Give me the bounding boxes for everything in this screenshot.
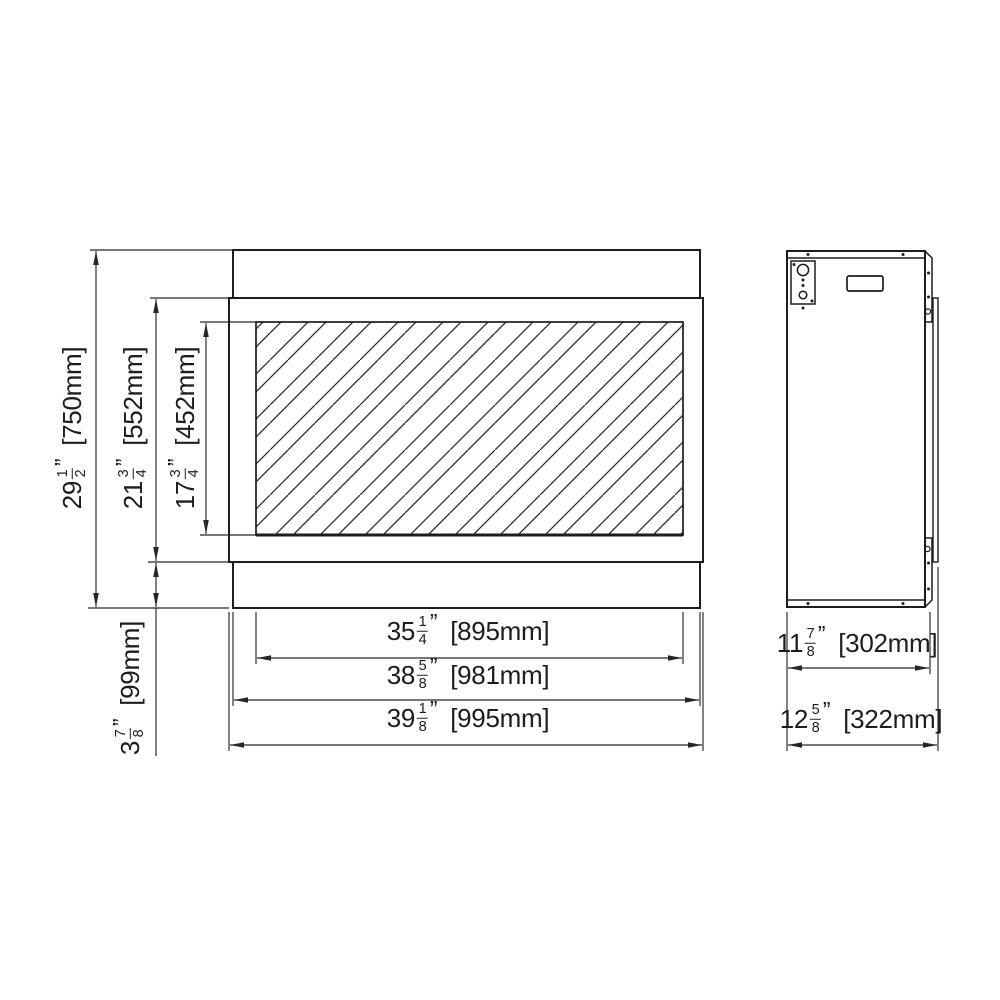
dim-whole: 11 — [777, 630, 803, 656]
dim-label-base-height: 378”[99mm] — [113, 621, 147, 755]
dim-metric: [322mm] — [843, 706, 942, 732]
control-panel — [791, 261, 815, 304]
front-view — [229, 250, 703, 608]
inch-mark: ” — [110, 719, 133, 726]
top-standoff-outline — [233, 250, 700, 298]
inch-mark: ” — [823, 699, 830, 722]
dim-whole: 21 — [120, 481, 146, 509]
dim-label-depth-body: 1178”[302mm] — [777, 626, 938, 660]
bottom-band-outline — [233, 562, 700, 608]
dim-label-glass-width: 3514”[895mm] — [387, 614, 550, 648]
dim-metric: [995mm] — [450, 705, 549, 731]
inch-mark: ” — [430, 655, 437, 678]
dim-label-overall-width: 3918”[995mm] — [387, 701, 550, 735]
flange-hole-top — [925, 309, 930, 314]
ext-overall-height — [88, 250, 233, 608]
dim-fraction: 34 — [116, 468, 150, 479]
inch-mark: ” — [165, 459, 188, 466]
dim-fraction: 14 — [417, 614, 428, 648]
dim-label-firebox-width: 3858”[981mm] — [387, 658, 550, 692]
dim-label-depth-overall: 1258”[322mm] — [780, 702, 943, 736]
dim-fraction: 34 — [168, 468, 202, 479]
screw-dots — [793, 253, 931, 605]
glass-edge-strip — [933, 298, 938, 562]
dim-whole: 17 — [172, 481, 198, 509]
dim-metric: [750mm] — [59, 347, 85, 446]
vent-slot — [847, 276, 883, 291]
control-button — [799, 291, 807, 299]
dim-metric: [452mm] — [172, 347, 198, 446]
dim-metric: [99mm] — [117, 621, 143, 706]
dim-whole: 3 — [117, 741, 143, 755]
glass-panel-hatch — [256, 322, 683, 535]
dim-fraction: 78 — [113, 728, 147, 739]
inch-mark: ” — [430, 698, 437, 721]
dim-fraction: 18 — [417, 701, 428, 735]
dim-fraction: 58 — [417, 658, 428, 692]
inch-mark: ” — [113, 459, 136, 466]
dim-fraction: 78 — [805, 626, 816, 660]
inch-mark: ” — [430, 611, 437, 634]
inch-mark: ” — [818, 623, 825, 646]
dim-whole: 39 — [387, 705, 415, 731]
dim-fraction: 58 — [810, 702, 821, 736]
dim-metric: [552mm] — [120, 347, 146, 446]
dim-metric: [895mm] — [450, 618, 549, 644]
dim-label-overall-height: 2912”[750mm] — [55, 347, 89, 510]
dim-whole: 35 — [387, 618, 415, 644]
mount-flange-bottom — [925, 538, 932, 607]
dim-whole: 38 — [387, 662, 415, 688]
dim-label-opening-height: 2134”[552mm] — [116, 347, 150, 510]
dim-metric: [302mm] — [838, 630, 937, 656]
dim-label-glass-height: 1734”[452mm] — [168, 347, 202, 510]
inch-mark: ” — [52, 459, 75, 466]
dim-metric: [981mm] — [450, 662, 549, 688]
control-knob — [797, 264, 808, 275]
side-view — [787, 251, 938, 607]
dim-whole: 12 — [780, 706, 808, 732]
dim-fraction: 12 — [55, 468, 89, 479]
dimension-drawing-canvas: 2912”[750mm] 2134”[552mm] 1734”[452mm] 3… — [0, 0, 1000, 1000]
dim-whole: 29 — [59, 481, 85, 509]
